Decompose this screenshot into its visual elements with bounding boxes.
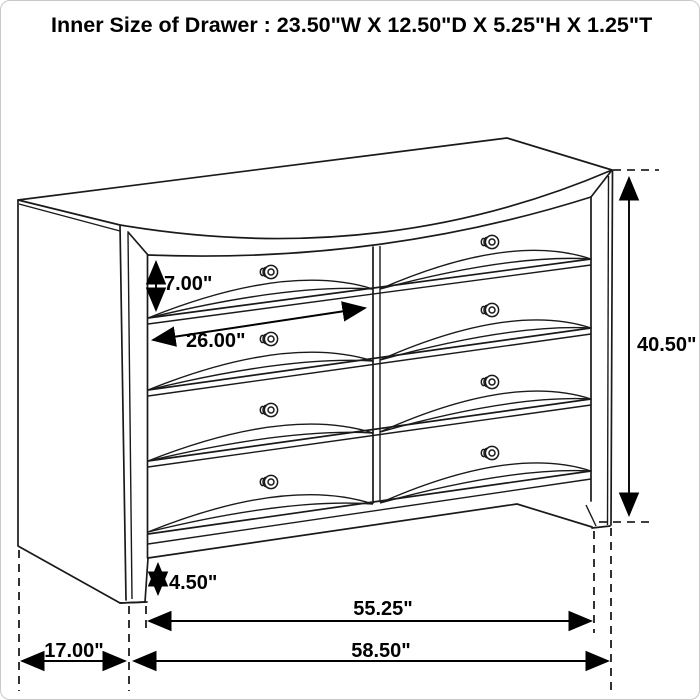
dimension-drawer-opening-width: 26.00" <box>153 308 365 352</box>
dimension-base-height: 4.50" <box>158 564 217 594</box>
dimension-front-width: 55.25" <box>149 598 591 621</box>
dresser-front-frame <box>120 171 613 603</box>
drawer-knob <box>481 446 498 459</box>
drawer-knob <box>260 332 277 345</box>
dimension-overall-width: 58.50" <box>134 640 608 662</box>
dimension-label-base-height: 4.50" <box>169 572 217 594</box>
dresser-outline <box>18 138 613 603</box>
dresser-dimension-drawing: Inner Size of Drawer : 23.50"W X 12.50"D… <box>1 1 700 700</box>
drawer-knob <box>481 375 498 388</box>
drawer-knob <box>481 303 498 316</box>
dimension-overall-height: 40.50" <box>599 170 697 522</box>
dimension-label-drawer-opening-width: 26.00" <box>186 330 246 352</box>
dresser-top-face <box>18 138 612 239</box>
dimension-label-overall-width: 58.50" <box>351 640 411 662</box>
drawer-knob <box>260 403 277 416</box>
dimension-side-depth: 17.00" <box>22 640 125 662</box>
dimension-label-front-width: 55.25" <box>353 598 413 620</box>
extension-lines <box>19 528 611 691</box>
dimension-label-side-depth: 17.00" <box>44 640 104 662</box>
drawer-eyebrow-carvings <box>148 250 591 532</box>
drawer-knob <box>481 235 498 248</box>
dresser-left-side-panel <box>18 200 147 603</box>
dimension-diagram-page: Inner Size of Drawer : 23.50"W X 12.50"D… <box>0 0 700 700</box>
dimension-label-drawer-front-height: 7.00" <box>164 273 212 295</box>
drawer-knob <box>260 475 277 488</box>
drawer-knob <box>260 265 277 278</box>
dimension-drawer-front-height: 7.00" <box>156 262 212 310</box>
diagram-title: Inner Size of Drawer : 23.50"W X 12.50"D… <box>51 13 652 37</box>
dimension-label-overall-height: 40.50" <box>637 334 697 356</box>
